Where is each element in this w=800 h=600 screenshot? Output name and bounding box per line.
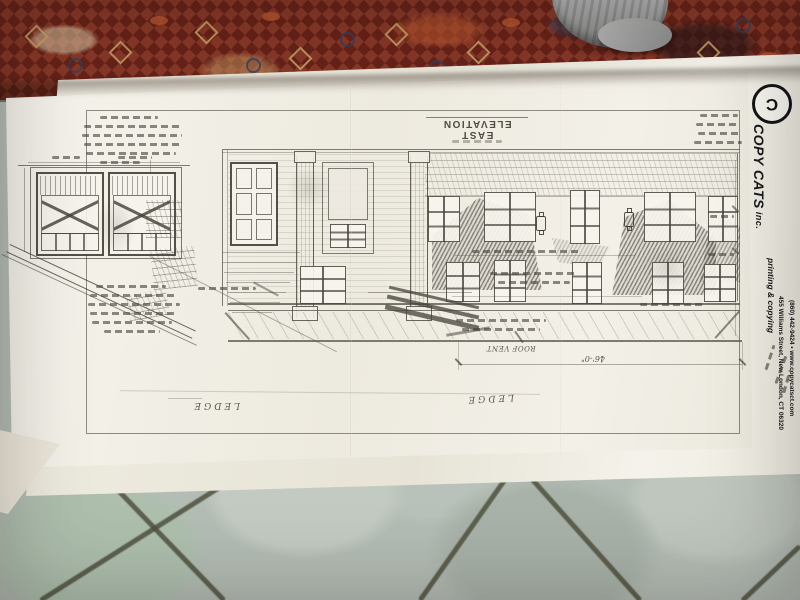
door-x-brace — [41, 195, 99, 234]
pencil-note-line — [708, 253, 734, 256]
pencil-smudge — [640, 246, 692, 290]
brick-hatch — [146, 200, 182, 238]
architectural-drawing: EAST ELEVATION — [0, 0, 800, 600]
step-line — [226, 282, 290, 283]
pencil-note-line — [694, 141, 742, 144]
door-window-lites — [41, 233, 99, 251]
corner-board-left — [222, 150, 223, 306]
pencil-note-line — [88, 303, 180, 306]
step-line — [222, 252, 300, 253]
elevation-title: EAST ELEVATION — [426, 117, 528, 140]
garage-dim-line — [28, 162, 180, 163]
pencil-note-line — [462, 328, 540, 331]
pencil-note-line — [118, 156, 152, 159]
pencil-smudge — [96, 196, 136, 256]
grade-line — [222, 149, 740, 150]
pencil-note-line — [696, 123, 740, 126]
six-pane-window — [708, 196, 738, 242]
door-planks — [40, 176, 100, 195]
pencil-note-line — [640, 303, 704, 306]
pencil-note-line — [86, 152, 176, 155]
gutter-line — [452, 296, 642, 297]
six-pane-window — [570, 190, 600, 244]
pencil-note-line — [84, 125, 180, 128]
six-pane-window — [300, 266, 346, 304]
pencil-note-line — [90, 312, 178, 315]
garage-door-left — [36, 172, 104, 256]
pencil-note-line — [100, 116, 158, 119]
pencil-note-line — [90, 294, 176, 297]
ledge-dim-line — [168, 398, 202, 399]
garage-grade-line — [18, 165, 190, 166]
floor-line — [455, 255, 635, 256]
roof-plane — [228, 312, 740, 339]
extension-line — [458, 342, 459, 370]
pencil-note-line — [52, 156, 80, 159]
six-pane-window — [704, 264, 736, 302]
pencil-note-line — [710, 215, 734, 218]
extension-line — [742, 342, 743, 370]
six-pane-window — [644, 192, 696, 242]
step-line — [222, 262, 296, 263]
entry-transom-window — [330, 224, 366, 248]
pencil-note-line — [104, 330, 160, 333]
pencil-note-line — [700, 114, 738, 117]
pilaster-base — [408, 151, 430, 163]
garage-vertical-dim — [24, 168, 25, 252]
pilaster-base — [294, 151, 316, 163]
overall-width-dimension: 46'-0" — [570, 354, 616, 363]
entry-recessed-panel — [328, 168, 368, 220]
scale-note — [452, 140, 502, 143]
pencil-note-line — [490, 272, 576, 275]
lantern-sconce-icon — [536, 216, 546, 231]
pencil-note-line — [84, 143, 180, 146]
pencil-note-line — [96, 285, 166, 288]
pencil-note-line — [82, 134, 182, 137]
step-line — [228, 292, 286, 293]
photo-scene: C COPY CATS inc. printing & copying 455 … — [0, 0, 800, 600]
six-panel-door — [230, 162, 278, 246]
pencil-note-line — [92, 321, 172, 324]
six-pane-window — [572, 262, 602, 304]
door-planks — [112, 176, 172, 195]
dimension-line — [458, 364, 742, 365]
roof-ridge-line — [228, 340, 742, 342]
pencil-note-line — [472, 250, 582, 253]
six-pane-window — [484, 192, 536, 242]
pencil-smudge — [286, 168, 332, 208]
roof-vent-label: ROOF VENT — [478, 344, 544, 352]
fascia-line-2 — [228, 310, 740, 311]
height-dimension-line — [735, 160, 736, 336]
six-pane-window — [428, 196, 460, 242]
paper-crease — [350, 90, 352, 456]
pencil-note-line — [698, 132, 740, 135]
step-line — [224, 272, 294, 273]
paper-crease — [560, 82, 562, 454]
pencil-note-line — [456, 319, 546, 322]
lantern-sconce-icon — [624, 212, 634, 227]
ledge-label-left: LEDGE — [192, 400, 240, 410]
